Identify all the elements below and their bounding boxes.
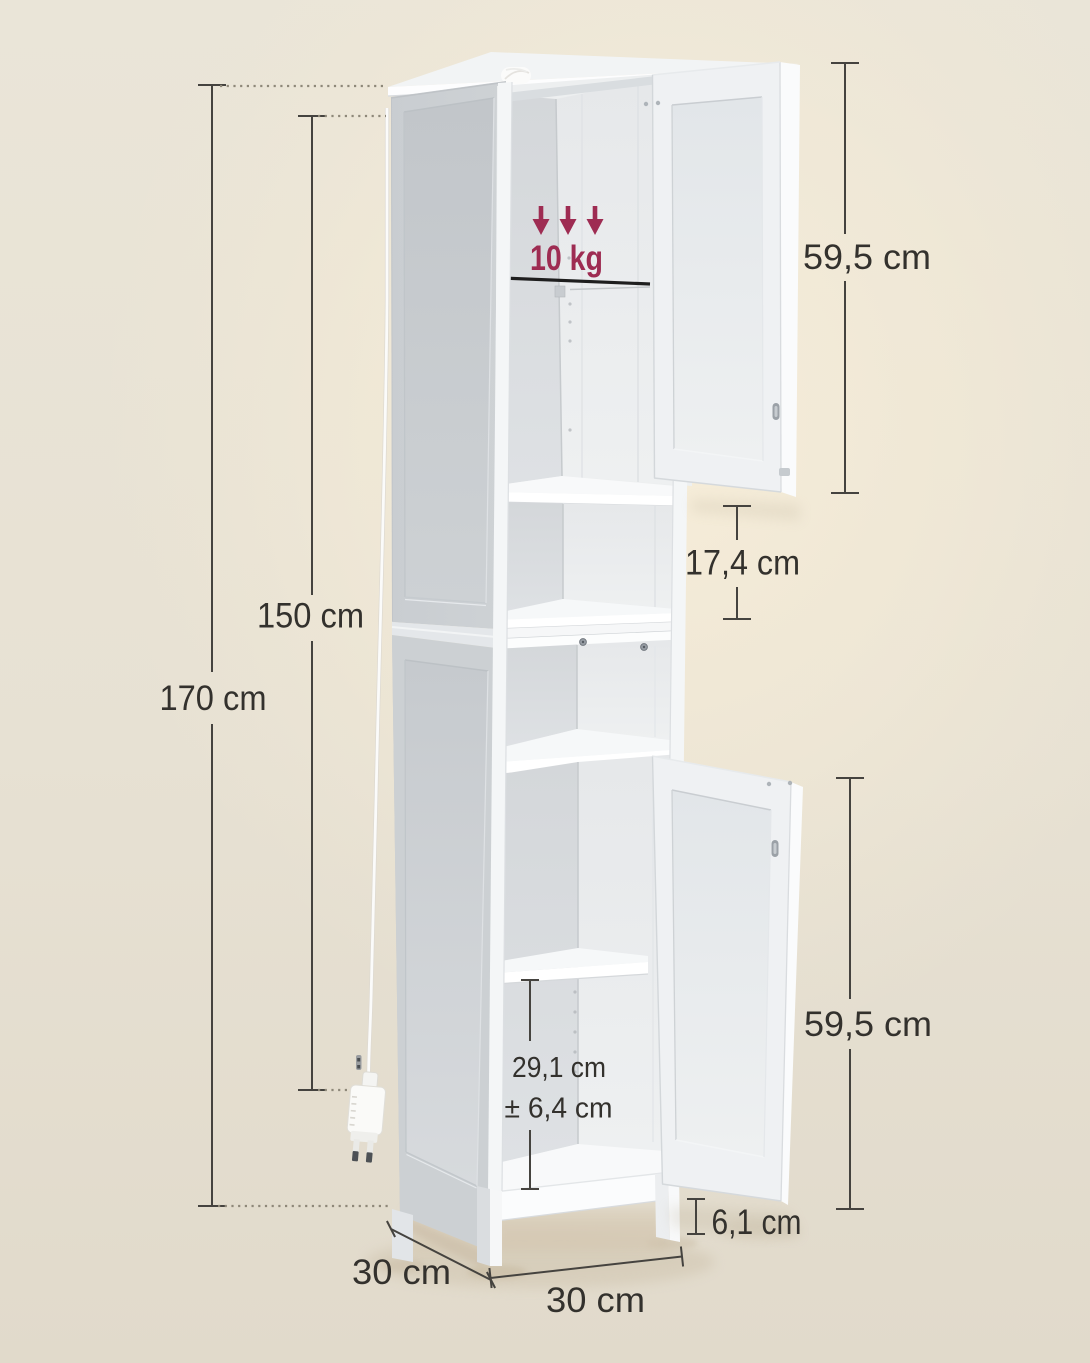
svg-text:30 cm: 30 cm	[546, 1281, 645, 1320]
svg-text:59,5 cm: 59,5 cm	[803, 238, 931, 277]
svg-text:17,4 cm: 17,4 cm	[685, 544, 800, 583]
svg-text:6,1 cm: 6,1 cm	[712, 1203, 802, 1242]
svg-text:150 cm: 150 cm	[257, 597, 364, 636]
svg-text:30 cm: 30 cm	[352, 1253, 451, 1292]
svg-text:59,5 cm: 59,5 cm	[804, 1005, 932, 1044]
svg-text:± 6,4 cm: ± 6,4 cm	[505, 1093, 613, 1125]
svg-text:10 kg: 10 kg	[530, 239, 603, 278]
svg-text:29,1 cm: 29,1 cm	[512, 1052, 606, 1084]
svg-text:170 cm: 170 cm	[160, 679, 267, 718]
